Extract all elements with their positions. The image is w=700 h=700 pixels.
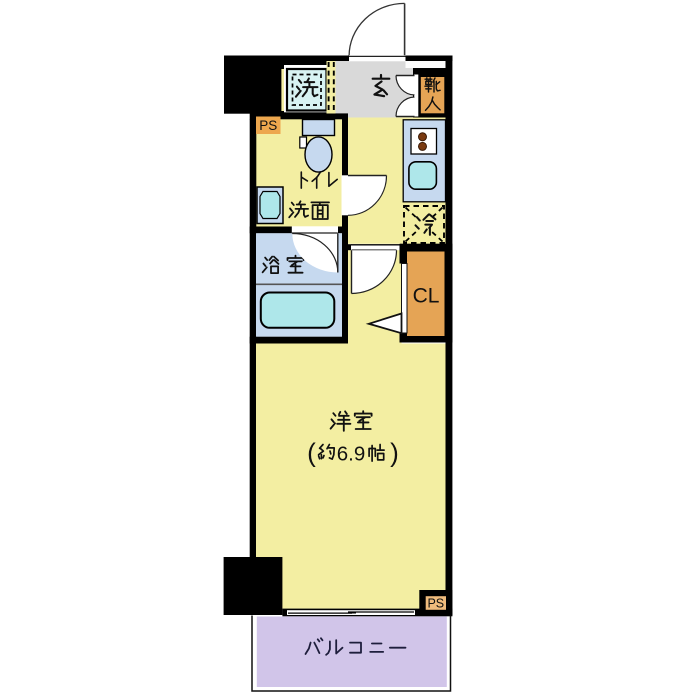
svg-text:6.9: 6.9 (337, 443, 366, 466)
svg-text:PS: PS (259, 118, 277, 133)
svg-text:(: ( (307, 438, 316, 468)
svg-text:CL: CL (413, 285, 440, 308)
svg-text:PS: PS (427, 597, 444, 611)
svg-text:): ) (390, 438, 399, 468)
